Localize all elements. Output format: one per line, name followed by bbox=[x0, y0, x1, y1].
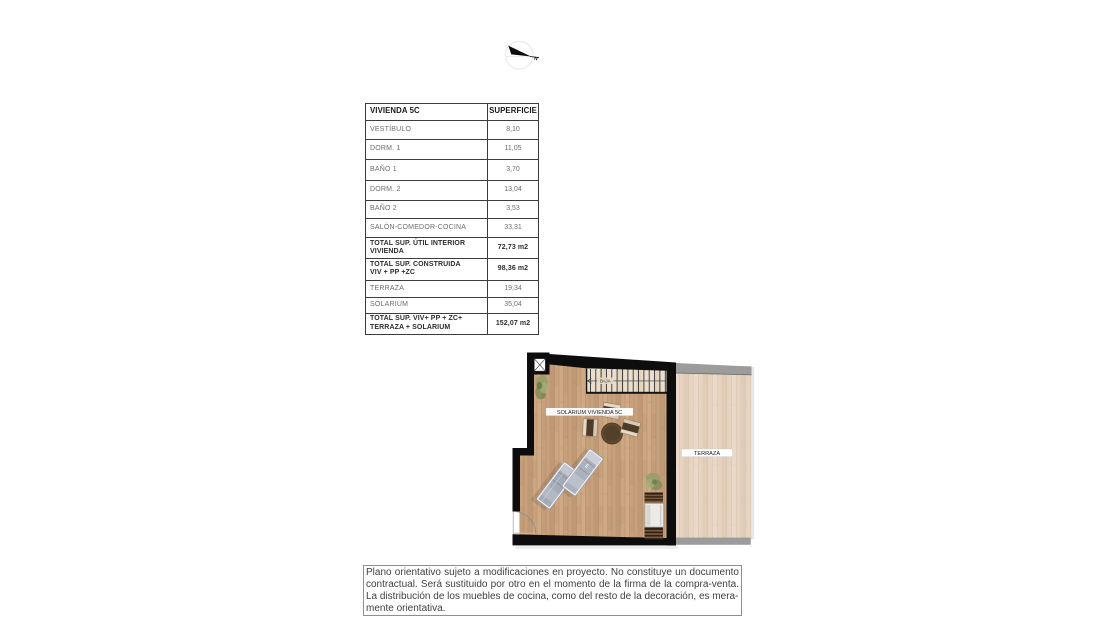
svg-text:TERRAZA: TERRAZA bbox=[694, 451, 720, 457]
svg-text:N: N bbox=[534, 56, 539, 63]
svg-text:SOLARIUM VIVIENDA 5C: SOLARIUM VIVIENDA 5C bbox=[557, 410, 622, 416]
svg-text:BAJA: BAJA bbox=[600, 379, 611, 384]
